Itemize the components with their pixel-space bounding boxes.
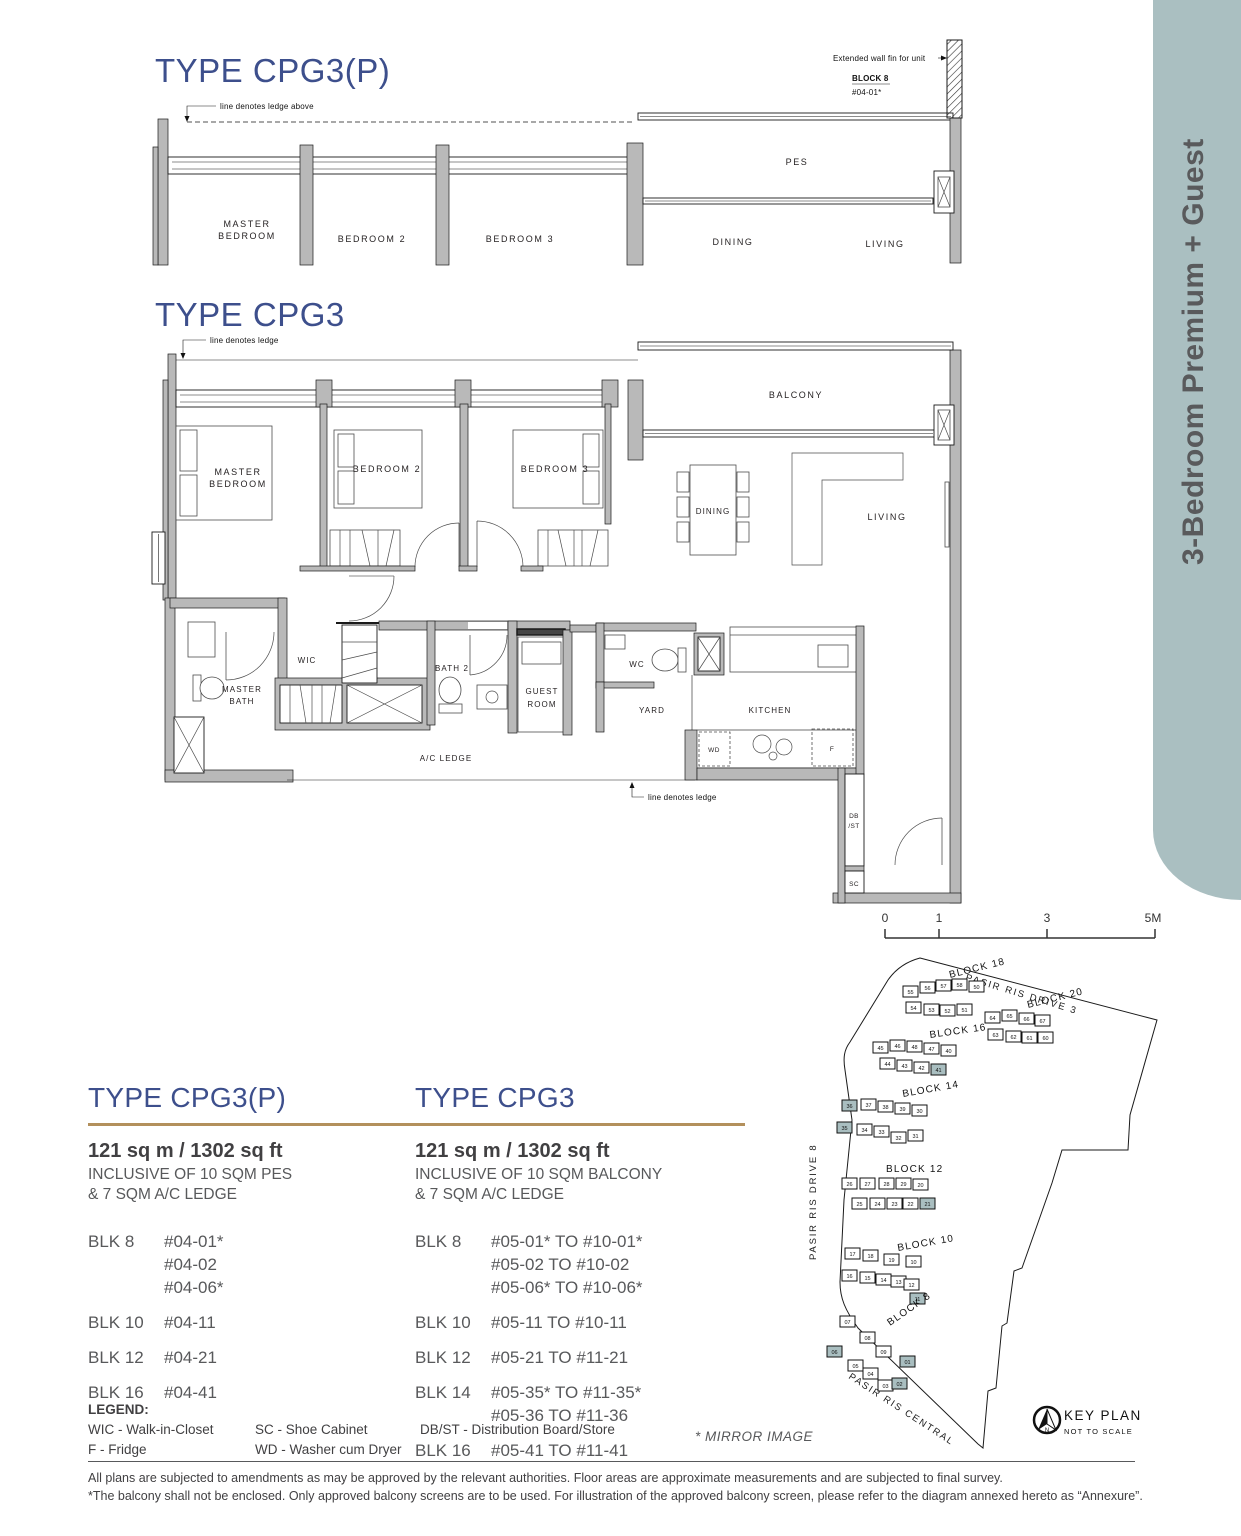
unit-number: #04-02 — [164, 1255, 415, 1275]
keyplan-unit-number: 60 — [1042, 1036, 1048, 1042]
unit-list: #05-01* TO #10-01*#05-02 TO #10-02#05-06… — [491, 1232, 745, 1301]
keyplan-unit-number: 14 — [880, 1278, 886, 1284]
keyplan-unit-number: 29 — [900, 1182, 906, 1188]
brochure-page: 3-Bedroom Premium + Guest TYPE CPG3(P) l… — [0, 0, 1241, 1536]
room-label-bed2: BEDROOM 2 — [338, 234, 406, 244]
keyplan-unit-number: 57 — [940, 984, 946, 990]
keyplan-unit-number: 03 — [882, 1384, 888, 1390]
spec-inclusive-2: & 7 SQM A/C LEDGE — [415, 1185, 745, 1205]
keyplan-block-label: BLOCK 16 — [929, 1022, 987, 1041]
gold-rule — [415, 1123, 745, 1126]
keyplan-unit-number: 67 — [1039, 1019, 1045, 1025]
keyplan-unit-number: 22 — [907, 1202, 913, 1208]
room-label-bed2: BEDROOM 2 — [353, 464, 421, 474]
keyplan-block: BLOCK 1226272829202524232221 — [842, 1164, 943, 1209]
spec-title-cpg3: TYPE CPG3 — [415, 1082, 745, 1114]
keyplan-unit-number: 56 — [924, 986, 930, 992]
room-label-master-bath-1: MASTER — [222, 685, 262, 694]
fin-note: Extended wall fin for unit — [833, 54, 926, 63]
keyplan-unit-number: 31 — [912, 1134, 918, 1140]
unit-list: #05-21 TO #11-21 — [491, 1348, 745, 1371]
north-arrow-icon: N — [1034, 1407, 1060, 1434]
label-sc: SC — [849, 881, 859, 888]
gold-rule — [88, 1123, 415, 1126]
legend: LEGEND: WIC - Walk-in-ClosetF - FridgeSC… — [88, 1402, 708, 1461]
keyplan-unit-number: 25 — [856, 1202, 862, 1208]
block-unit-row: BLK 12#05-21 TO #11-21 — [415, 1348, 745, 1371]
keyplan-unit-number: 06 — [831, 1350, 837, 1356]
keyplan-unit-number: 65 — [1006, 1014, 1012, 1020]
unit-list: #04-01*#04-02#04-06* — [164, 1232, 415, 1301]
label-fridge: F — [830, 746, 834, 753]
keyplan-unit-number: 46 — [894, 1044, 900, 1050]
block-unit-row: BLK 8#04-01*#04-02#04-06* — [88, 1232, 415, 1301]
keyplan-unit-number: 23 — [891, 1202, 897, 1208]
room-label-living: LIVING — [867, 512, 906, 522]
room-label-master-2: BEDROOM — [218, 231, 276, 241]
keyplan-unit-number: 20 — [917, 1183, 923, 1189]
block-label: BLK 10 — [88, 1313, 164, 1336]
spec-inclusive-1: INCLUSIVE OF 10 SQM BALCONY — [415, 1165, 745, 1185]
keyplan-unit-number: 51 — [961, 1008, 967, 1014]
footer-divider — [88, 1461, 1135, 1462]
keyplan-unit-number: 41 — [935, 1068, 941, 1074]
plan-title-cpg3: TYPE CPG3 — [155, 296, 345, 334]
keyplan-block-label: BLOCK 12 — [886, 1164, 943, 1175]
keyplan-unit-number: 07 — [844, 1320, 850, 1326]
fin-block-note: BLOCK 8 — [852, 74, 889, 83]
keyplan-unit-number: 40 — [945, 1049, 951, 1055]
keyplan-unit-number: 16 — [846, 1274, 852, 1280]
label-washer-dryer: WD — [708, 747, 720, 754]
unit-number: #05-02 TO #10-02 — [491, 1255, 745, 1275]
scale-tick-5m: 5M — [1145, 911, 1162, 925]
keyplan-unit-number: 12 — [908, 1283, 914, 1289]
keyplan-block: BLOCK 1436373839303534333231 — [837, 1079, 960, 1143]
room-label-yard: YARD — [639, 706, 665, 715]
keyplan-unit-number: 24 — [874, 1202, 880, 1208]
keyplan-unit-number: 39 — [899, 1107, 905, 1113]
room-label-pes: PES — [786, 157, 809, 167]
keyplan-unit-number: 62 — [1010, 1035, 1016, 1041]
scale-tick-1: 1 — [936, 911, 943, 925]
keyplan-unit-number: 34 — [861, 1128, 867, 1134]
disclaimer-line-1: All plans are subjected to amendments as… — [88, 1469, 1143, 1487]
keyplan-unit-number: 10 — [910, 1260, 916, 1266]
keyplan-unit-number: 36 — [846, 1104, 852, 1110]
keyplan-unit-number: 08 — [864, 1336, 870, 1342]
keyplan-unit-number: 30 — [916, 1109, 922, 1115]
unit-number: #04-01* — [164, 1232, 415, 1252]
road-label-pasir-ris-drive-8: PASIR RIS DRIVE 8 — [808, 1144, 819, 1260]
keyplan-subtitle: NOT TO SCALE — [1064, 1427, 1133, 1436]
spec-inclusive-2: & 7 SQM A/C LEDGE — [88, 1185, 415, 1205]
keyplan-unit-number: 28 — [883, 1182, 889, 1188]
keyplan-unit-number: 45 — [877, 1046, 883, 1052]
block-label: BLK 8 — [88, 1232, 164, 1301]
room-label-kitchen: KITCHEN — [749, 706, 792, 715]
keyplan-unit-number: 21 — [924, 1202, 930, 1208]
legend-column: SC - Shoe CabinetWD - Washer cum Dryer — [255, 1420, 420, 1461]
unit-number: #05-11 TO #10-11 — [491, 1313, 745, 1333]
unit-number: #04-21 — [164, 1348, 415, 1368]
block-label: BLK 12 — [415, 1348, 491, 1371]
ledge-note-cpg3p: line denotes ledge above — [220, 102, 314, 111]
room-label-dining: DINING — [696, 507, 731, 516]
spec-cpg3p: TYPE CPG3(P) 121 sq m / 1302 sq ft INCLU… — [88, 1082, 415, 1418]
room-label-wic: WIC — [298, 656, 317, 665]
unit-number: #05-21 TO #11-21 — [491, 1348, 745, 1368]
room-label-master-1: MASTER — [214, 467, 261, 477]
keyplan-unit-number: 27 — [864, 1182, 870, 1188]
unit-list: #04-11 — [164, 1313, 415, 1336]
block-label: BLK 8 — [415, 1232, 491, 1301]
spec-unit-rows: BLK 8#04-01*#04-02#04-06*BLK 10#04-11BLK… — [88, 1232, 415, 1406]
spec-inclusive-1: INCLUSIVE OF 10 SQM PES — [88, 1165, 415, 1185]
label-db: DB — [849, 813, 859, 820]
keyplan-unit-number: 47 — [928, 1047, 934, 1053]
legend-heading: LEGEND: — [88, 1402, 708, 1417]
room-label-bed3: BEDROOM 3 — [521, 464, 589, 474]
keyplan-unit-number: 61 — [1026, 1036, 1032, 1042]
unit-number: #04-06* — [164, 1278, 415, 1298]
keyplan-unit-number: 37 — [865, 1103, 871, 1109]
fin-unit-note: #04-01* — [852, 88, 881, 97]
room-label-living-p: LIVING — [865, 239, 904, 249]
spec-area-cpg3p: 121 sq m / 1302 sq ft — [88, 1140, 415, 1163]
disclaimer-line-2: *The balcony shall not be enclosed. Only… — [88, 1487, 1143, 1505]
room-label-guest-2: ROOM — [527, 700, 556, 709]
keyplan-unit-number: 26 — [846, 1182, 852, 1188]
keyplan-unit-number: 43 — [901, 1064, 907, 1070]
keyplan-unit-number: 17 — [849, 1252, 855, 1258]
keyplan-unit-number: 35 — [841, 1126, 847, 1132]
keyplan-block-label: BLOCK 10 — [897, 1233, 955, 1254]
key-plan: PASIR RIS DRIVE 3 PASIR RIS DRIVE 8 PASI… — [800, 950, 1240, 1462]
keyplan-unit-number: 15 — [864, 1276, 870, 1282]
keyplan-unit-number: 04 — [867, 1372, 873, 1378]
keyplan-block: BLOCK 16454648474044434241 — [873, 1022, 987, 1075]
keyplan-unit-number: 09 — [880, 1350, 886, 1356]
block-unit-row: BLK 10#05-11 TO #10-11 — [415, 1313, 745, 1336]
ledge-note-cpg3: line denotes ledge — [210, 336, 279, 345]
unit-list: #04-21 — [164, 1348, 415, 1371]
keyplan-block-label: BLOCK 14 — [902, 1079, 960, 1100]
room-label-master-2: BEDROOM — [209, 479, 267, 489]
keyplan-blocks: BLOCK 18555657585054535251BLOCK 20646566… — [827, 956, 1084, 1391]
keyplan-unit-number: 32 — [895, 1136, 901, 1142]
keyplan-block: BLOCK 1017181910161514131211 — [842, 1233, 955, 1304]
legend-item: WD - Washer cum Dryer — [255, 1440, 420, 1460]
keyplan-unit-number: 18 — [867, 1254, 873, 1260]
floorplan-cpg3: line denotes ledge MASTER BEDROOM — [150, 330, 970, 910]
scale-bar: 0 1 3 5M — [875, 908, 1175, 950]
keyplan-unit-number: 48 — [911, 1045, 917, 1051]
block-unit-row: BLK 8#05-01* TO #10-01*#05-02 TO #10-02#… — [415, 1232, 745, 1301]
room-label-master-bath-2: BATH — [229, 697, 254, 706]
keyplan-unit-number: 58 — [956, 983, 962, 989]
keyplan-block: BLOCK 8070809060504030102 — [827, 1290, 933, 1391]
label-st: /ST — [848, 823, 859, 830]
unit-number: #05-35* TO #11-35* — [491, 1383, 745, 1403]
mirror-image-note: * MIRROR IMAGE — [695, 1429, 813, 1444]
spec-title-cpg3p: TYPE CPG3(P) — [88, 1082, 415, 1114]
scale-tick-0: 0 — [882, 911, 889, 925]
legend-column: DB/ST - Distribution Board/Store — [420, 1420, 615, 1461]
block-label: BLK 12 — [88, 1348, 164, 1371]
unit-number: #04-11 — [164, 1313, 415, 1333]
category-sidebar-band: 3-Bedroom Premium + Guest — [1153, 0, 1241, 900]
keyplan-unit-number: 42 — [918, 1066, 924, 1072]
legend-item: WIC - Walk-in-Closet — [88, 1420, 255, 1440]
keyplan-unit-number: 38 — [882, 1105, 888, 1111]
keyplan-title: KEY PLAN — [1064, 1408, 1142, 1423]
keyplan-unit-number: 50 — [973, 985, 979, 991]
spec-area-cpg3: 121 sq m / 1302 sq ft — [415, 1140, 745, 1163]
keyplan-unit-number: 54 — [910, 1006, 916, 1012]
keyplan-unit-number: 52 — [944, 1009, 950, 1015]
keyplan-unit-number: 13 — [895, 1280, 901, 1286]
block-unit-row: BLK 12#04-21 — [88, 1348, 415, 1371]
keyplan-unit-number: 44 — [884, 1062, 890, 1068]
legend-item: SC - Shoe Cabinet — [255, 1420, 420, 1440]
legend-item: DB/ST - Distribution Board/Store — [420, 1420, 615, 1440]
keyplan-unit-number: 66 — [1023, 1017, 1029, 1023]
unit-number: #05-06* TO #10-06* — [491, 1278, 745, 1298]
disclaimer: All plans are subjected to amendments as… — [88, 1469, 1143, 1505]
room-label-bath2: BATH 2 — [435, 664, 469, 673]
room-label-ac-ledge: A/C LEDGE — [420, 754, 473, 763]
block-unit-row: BLK 10#04-11 — [88, 1313, 415, 1336]
category-label: 3-Bedroom Premium + Guest — [1177, 85, 1211, 565]
unit-list: #05-11 TO #10-11 — [491, 1313, 745, 1336]
unit-number: #04-41 — [164, 1383, 415, 1403]
room-label-wc: WC — [629, 660, 645, 669]
room-label-balcony: BALCONY — [769, 390, 823, 400]
unit-number: #05-01* TO #10-01* — [491, 1232, 745, 1252]
room-label-master-1: MASTER — [223, 219, 270, 229]
room-label-dining-p: DINING — [712, 237, 753, 247]
keyplan-unit-number: 64 — [989, 1016, 995, 1022]
floorplan-cpg3p: line denotes ledge above Extended wall f… — [150, 35, 970, 290]
room-label-guest-1: GUEST — [525, 687, 558, 696]
legend-column: WIC - Walk-in-ClosetF - Fridge — [88, 1420, 255, 1461]
keyplan-unit-number: 33 — [878, 1130, 884, 1136]
keyplan-unit-number: 19 — [888, 1258, 894, 1264]
ledge-note-bottom: line denotes ledge — [648, 793, 717, 802]
legend-item: F - Fridge — [88, 1440, 255, 1460]
keyplan-block-label: BLOCK 8 — [885, 1290, 933, 1328]
keyplan-unit-number: 63 — [992, 1033, 998, 1039]
svg-text:N: N — [1045, 1428, 1049, 1434]
block-label: BLK 10 — [415, 1313, 491, 1336]
room-label-bed3: BEDROOM 3 — [486, 234, 554, 244]
keyplan-unit-number: 01 — [904, 1360, 910, 1366]
keyplan-unit-number: 53 — [928, 1008, 934, 1014]
keyplan-unit-number: 05 — [852, 1364, 858, 1370]
keyplan-unit-number: 02 — [896, 1382, 902, 1388]
scale-tick-3: 3 — [1044, 911, 1051, 925]
keyplan-unit-number: 55 — [907, 990, 913, 996]
